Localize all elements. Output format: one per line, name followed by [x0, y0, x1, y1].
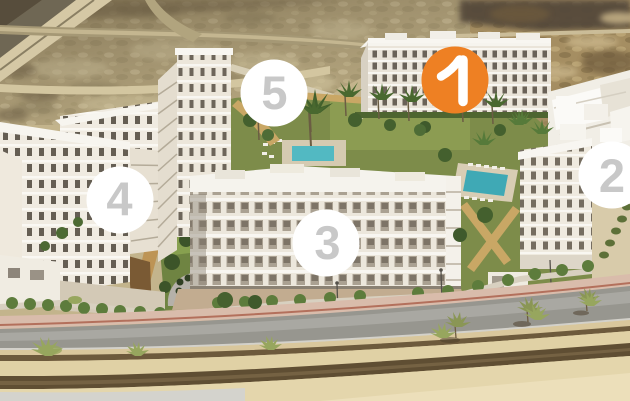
svg-text:5: 5	[261, 66, 287, 119]
svg-text:2: 2	[599, 149, 625, 202]
svg-text:3: 3	[314, 216, 340, 269]
svg-text:4: 4	[106, 172, 132, 225]
